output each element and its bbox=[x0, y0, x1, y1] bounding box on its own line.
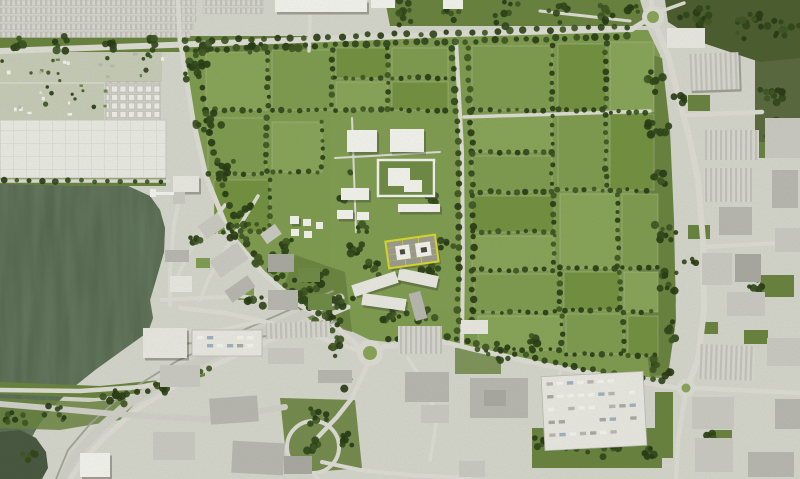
photo-grain bbox=[0, 0, 800, 479]
aerial-masterplan-map bbox=[0, 0, 800, 479]
satellite-masterplan-rendering bbox=[0, 0, 800, 479]
map-layers bbox=[0, 0, 800, 479]
